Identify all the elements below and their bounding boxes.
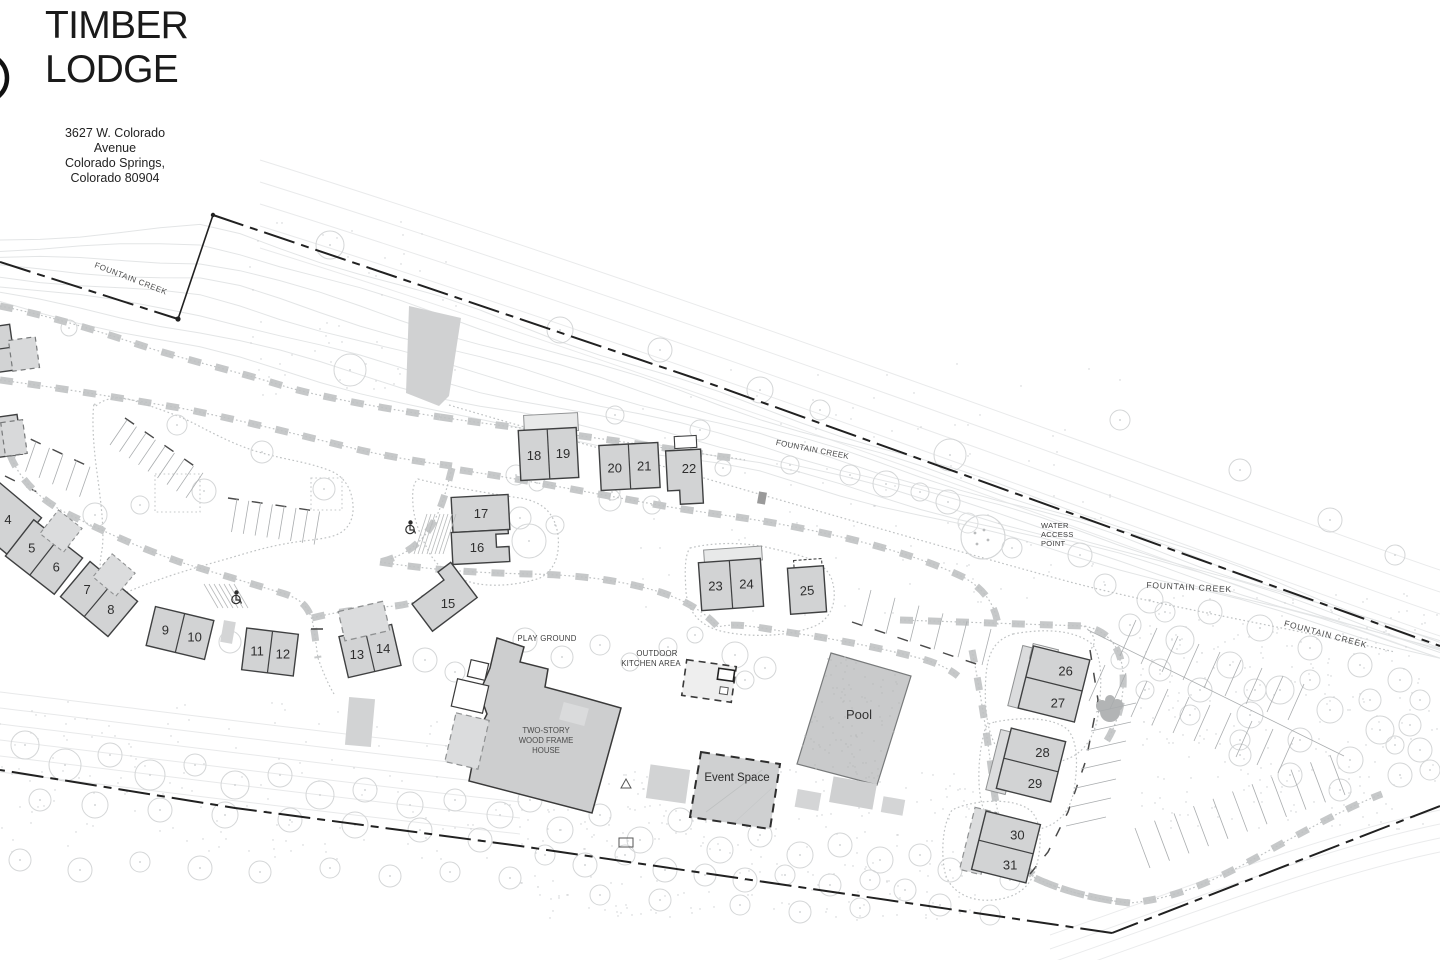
- svg-text:KITCHEN AREA: KITCHEN AREA: [621, 659, 681, 668]
- svg-text:11: 11: [250, 643, 264, 658]
- svg-text:8: 8: [107, 602, 114, 617]
- svg-text:OUTDOOR: OUTDOOR: [636, 649, 677, 658]
- svg-text:Event Space: Event Space: [704, 772, 769, 784]
- svg-text:Avenue: Avenue: [94, 141, 136, 155]
- svg-text:27: 27: [1051, 695, 1065, 710]
- svg-text:PLAY GROUND: PLAY GROUND: [517, 634, 576, 643]
- svg-text:Colorado Springs,: Colorado Springs,: [65, 156, 165, 170]
- svg-text:30: 30: [1010, 827, 1024, 842]
- svg-text:13: 13: [350, 647, 364, 662]
- svg-text:20: 20: [607, 460, 621, 475]
- svg-text:18: 18: [527, 448, 541, 463]
- svg-text:26: 26: [1058, 663, 1072, 678]
- svg-text:12: 12: [276, 647, 290, 662]
- svg-text:28: 28: [1035, 745, 1049, 760]
- svg-text:ACCESS: ACCESS: [1041, 530, 1074, 539]
- svg-text:7: 7: [84, 582, 91, 597]
- svg-text:19: 19: [556, 446, 570, 461]
- svg-text:TIMBER: TIMBER: [45, 4, 188, 47]
- svg-text:WOOD FRAME: WOOD FRAME: [519, 736, 574, 745]
- svg-text:25: 25: [799, 583, 814, 599]
- svg-text:31: 31: [1003, 857, 1017, 872]
- svg-text:22: 22: [682, 461, 696, 476]
- svg-text:24: 24: [739, 576, 753, 591]
- svg-text:9: 9: [162, 622, 169, 637]
- svg-text:POINT: POINT: [1041, 539, 1066, 548]
- svg-text:TWO-STORY: TWO-STORY: [522, 726, 570, 735]
- svg-text:23: 23: [708, 579, 722, 594]
- svg-text:16: 16: [470, 540, 484, 555]
- svg-text:14: 14: [376, 641, 390, 656]
- svg-text:3627 W. Colorado: 3627 W. Colorado: [65, 126, 165, 140]
- svg-text:6: 6: [53, 560, 60, 575]
- svg-text:4: 4: [4, 512, 11, 527]
- svg-text:LODGE: LODGE: [45, 48, 178, 91]
- svg-text:Colorado 80904: Colorado 80904: [71, 171, 160, 185]
- svg-text:WATER: WATER: [1041, 521, 1069, 530]
- svg-text:15: 15: [441, 596, 455, 611]
- svg-text:Pool: Pool: [846, 707, 872, 722]
- svg-text:HOUSE: HOUSE: [532, 746, 560, 755]
- svg-text:10: 10: [187, 630, 201, 645]
- svg-text:5: 5: [28, 540, 35, 555]
- svg-text:17: 17: [474, 506, 488, 521]
- svg-text:29: 29: [1028, 776, 1042, 791]
- svg-text:21: 21: [637, 459, 651, 474]
